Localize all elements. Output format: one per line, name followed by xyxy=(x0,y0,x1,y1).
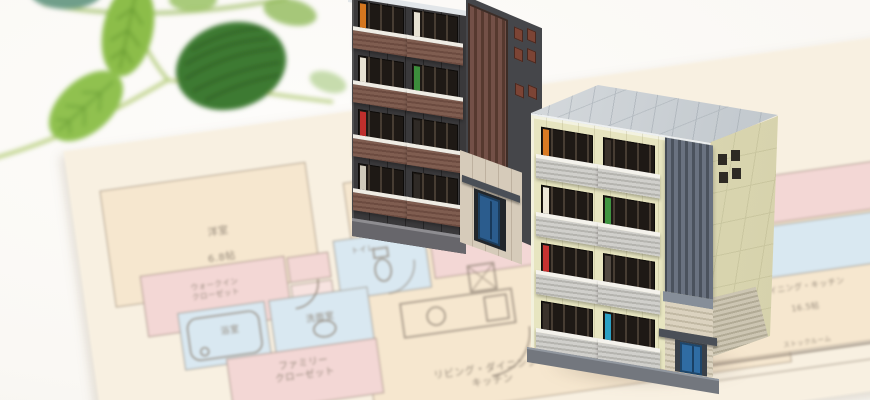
accent-panel xyxy=(605,255,611,282)
entrance-door xyxy=(680,342,702,376)
leaf xyxy=(169,0,217,11)
accent-panel xyxy=(360,57,366,82)
balcony-unit xyxy=(603,137,655,200)
leaf xyxy=(261,0,319,30)
balcony-unit xyxy=(412,10,458,67)
accent-panel xyxy=(360,165,366,190)
side-window xyxy=(514,26,523,42)
photo-scene: 洋室 6.8帖 ウォークイン クローゼット トイレ ウォークイン クローゼット … xyxy=(0,0,870,400)
accent-panel xyxy=(414,120,420,145)
balcony-unit xyxy=(358,55,404,112)
front-building-model xyxy=(512,78,802,393)
balcony-unit xyxy=(412,64,458,121)
side-window xyxy=(514,46,523,62)
balcony-unit xyxy=(603,195,655,258)
accent-panel xyxy=(543,129,549,156)
balcony-unit xyxy=(412,118,458,175)
accent-panel xyxy=(414,66,420,91)
entrance-recess xyxy=(675,339,707,376)
front-building-front-facade xyxy=(531,115,713,377)
balcony-unit xyxy=(358,1,404,58)
entrance-recess xyxy=(474,188,506,252)
side-window xyxy=(719,172,728,183)
leaf xyxy=(36,57,136,155)
leaf xyxy=(165,9,296,123)
accent-panel xyxy=(543,303,549,330)
side-window xyxy=(527,48,536,64)
balcony-unit xyxy=(541,127,593,190)
accent-panel xyxy=(605,313,611,340)
balcony-unit xyxy=(603,253,655,316)
bedroom-name: 洋室 xyxy=(207,225,229,239)
balcony-unit xyxy=(358,109,404,166)
balcony-unit xyxy=(358,163,404,220)
accent-panel xyxy=(605,139,611,166)
side-window xyxy=(732,168,741,179)
leaf xyxy=(30,0,102,9)
accent-panel xyxy=(414,12,420,37)
accent-panel xyxy=(414,174,420,199)
stem xyxy=(43,0,288,13)
accent-panel xyxy=(543,245,549,272)
back-building-front-facade xyxy=(352,0,466,254)
leaf xyxy=(94,0,162,81)
side-window xyxy=(527,28,536,44)
side-window xyxy=(718,154,727,165)
accent-panel xyxy=(360,111,366,136)
louver-panel xyxy=(665,137,713,299)
leaf xyxy=(307,67,349,98)
balcony-unit xyxy=(541,185,593,248)
accent-panel xyxy=(605,197,611,224)
balcony-unit xyxy=(541,243,593,306)
accent-panel xyxy=(360,3,366,28)
balcony-unit xyxy=(412,172,458,229)
accent-panel xyxy=(543,187,549,214)
stem xyxy=(168,80,333,102)
stem xyxy=(129,0,168,80)
entrance-door xyxy=(478,193,500,247)
side-window xyxy=(731,150,740,161)
